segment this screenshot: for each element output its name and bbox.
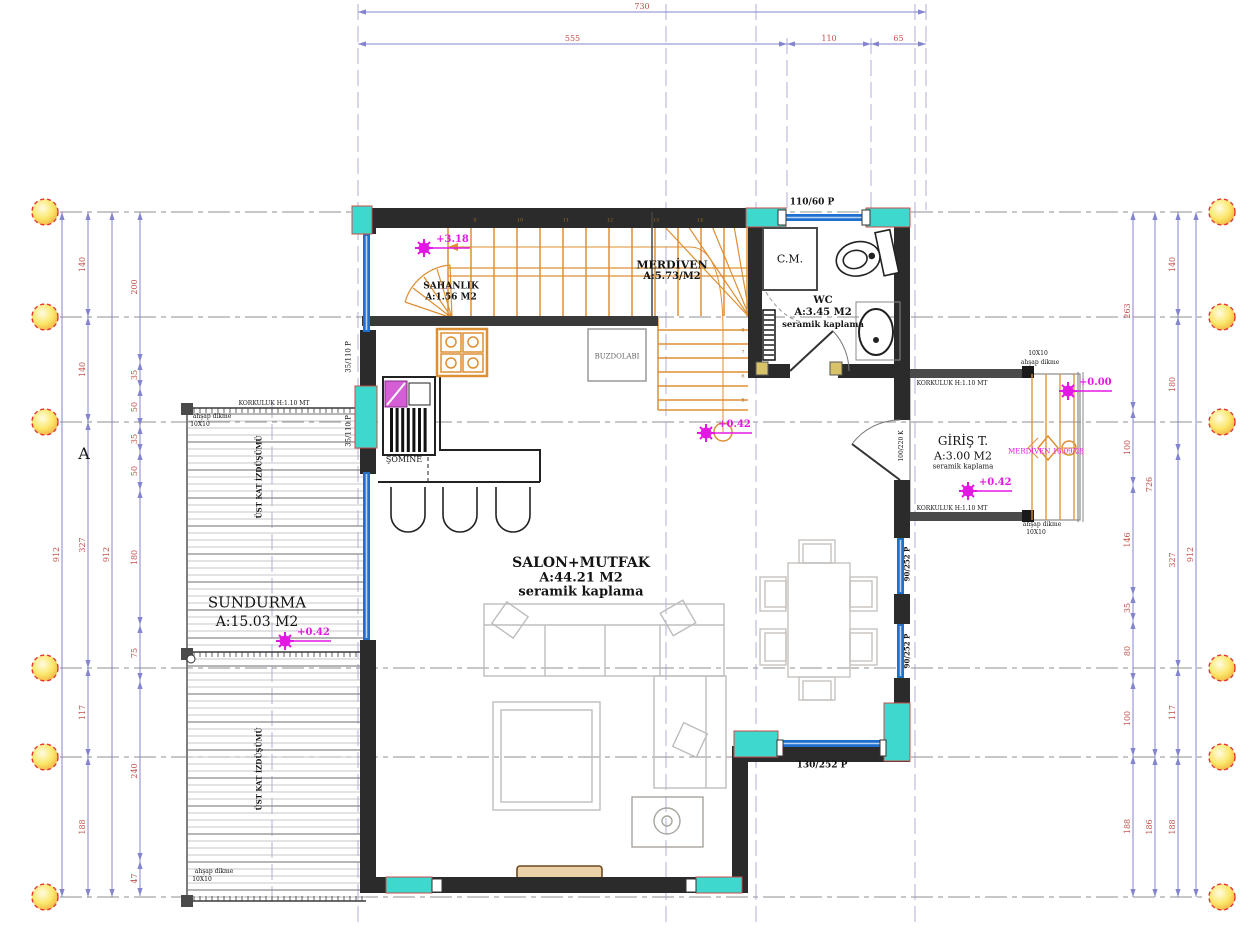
wall-wc-bottom (748, 364, 790, 378)
wall-wc-left (748, 208, 762, 378)
chair (850, 577, 877, 611)
radiator (763, 310, 775, 360)
door-jamb (830, 362, 842, 375)
grid-layer (32, 4, 1235, 928)
windows (352, 206, 910, 893)
dimension-value: 47 (130, 873, 139, 883)
dimension-value: 200 (130, 279, 139, 294)
pillow (492, 602, 528, 638)
wall-right (894, 208, 910, 420)
window-jamb (777, 740, 783, 756)
level-marker-stair: +3.18 (415, 234, 470, 257)
dimension-value: 110 (821, 34, 836, 43)
dimension-value: 140 (1168, 257, 1177, 272)
dimension-value: 117 (1168, 705, 1177, 720)
grid-bubble (32, 744, 58, 770)
closet-cm (763, 228, 817, 290)
wall-stair-hall (362, 316, 658, 326)
dimension-value: 140 (78, 257, 87, 272)
fridge (588, 329, 646, 381)
porch-top-rail (906, 369, 1028, 378)
window-jamb (862, 210, 870, 225)
level-marker-sundurma-value: +0.42 (297, 627, 330, 638)
dimension-value: 188 (78, 819, 87, 834)
wood-post (181, 403, 193, 415)
dimension-value: 75 (130, 648, 139, 658)
dimension-value: 555 (565, 34, 580, 43)
window-block (386, 877, 432, 893)
window-jamb (778, 210, 786, 225)
sofa-vertical (654, 676, 726, 788)
kitchen (378, 329, 646, 532)
window-block (352, 206, 372, 234)
fireplace (383, 377, 435, 455)
grid-bubble (32, 199, 58, 225)
dimension-value: 912 (1186, 547, 1195, 562)
window-block (696, 877, 742, 893)
dimension-value: 240 (130, 763, 139, 778)
window-block (734, 731, 778, 757)
dining-table (788, 563, 850, 677)
dimension-value: 912 (102, 547, 111, 562)
dimension-value: 188 (1123, 819, 1132, 834)
grid-bubble (1209, 409, 1235, 435)
level-marker-entry-steps-value: +0.00 (1079, 377, 1112, 388)
dimension-value: 188 (1168, 819, 1177, 834)
post-marker (187, 655, 195, 663)
stove (437, 329, 487, 376)
door-jamb (756, 362, 768, 375)
grid-bubble (1209, 304, 1235, 330)
dimension-value: 146 (1123, 532, 1132, 547)
dimension-value: 100 (1123, 440, 1132, 455)
entry-door-leaf (852, 444, 900, 480)
dimension-value: 912 (52, 547, 61, 562)
level-marker-giris: +0.42 (959, 477, 1012, 500)
pillow (673, 723, 708, 758)
side-unit (632, 797, 703, 847)
window-block (866, 208, 910, 227)
dimension-value: 263 (1123, 303, 1132, 318)
wood-post (181, 895, 193, 907)
dimension-value: 327 (1168, 552, 1177, 567)
grid-bubble (1209, 199, 1235, 225)
window-block (355, 386, 377, 448)
grid-bubble (1209, 884, 1235, 910)
window-jamb (686, 879, 696, 892)
window-jamb (432, 879, 442, 892)
coffee-table (493, 702, 600, 810)
toilet (832, 230, 899, 285)
window-jamb (880, 740, 886, 756)
sofa-horizontal (484, 604, 724, 676)
window-block (884, 703, 910, 761)
dimension-value: 35 (130, 434, 139, 444)
level-marker-salon: +0.42 (697, 419, 752, 442)
grid-bubble (32, 304, 58, 330)
sink (859, 309, 893, 355)
deck-hatch (188, 414, 366, 897)
dimension-value: 65 (893, 34, 903, 43)
level-marker-entry-steps: +0.00 (1059, 377, 1112, 400)
sundurma-deck (181, 403, 366, 907)
dimension-value: 50 (130, 466, 139, 476)
chair (760, 577, 786, 611)
wall-top (362, 208, 746, 228)
wc-door-leaf (790, 331, 833, 371)
grid-bubble (32, 884, 58, 910)
floor-plan-page: 7305551106591214014032711718891220035503… (0, 0, 1250, 930)
kitchen-island (440, 377, 540, 482)
bar-stools (391, 487, 530, 532)
step-direction-symbol (1038, 436, 1058, 460)
level-marker-stair-value: +3.18 (436, 234, 469, 245)
dimension-value: 117 (78, 705, 87, 720)
dimension-value: 35 (130, 370, 139, 380)
entry-porch (906, 366, 1083, 522)
floor-plan-drawing: 7305551106591214014032711718891220035503… (0, 0, 1250, 930)
dimension-value: 35 (1123, 603, 1132, 613)
wall-left (360, 330, 376, 386)
dimension-value: 140 (78, 362, 87, 377)
chair (850, 629, 877, 665)
grid-bubble (1209, 655, 1235, 681)
level-marker-salon-value: +0.42 (718, 419, 751, 430)
salon-furniture (484, 540, 877, 879)
dimension-layer: 7305551106591214014032711718891220035503… (52, 2, 1199, 897)
dimension-value: 327 (78, 537, 87, 552)
dimension-value: 726 (1145, 477, 1154, 492)
grid-bubble (32, 409, 58, 435)
pillow (660, 600, 696, 636)
chair (760, 629, 786, 665)
dimension-value: 180 (1168, 377, 1177, 392)
level-marker-giris-value: +0.42 (979, 477, 1012, 488)
dimension-value: 730 (634, 2, 649, 11)
dimension-value: 80 (1123, 646, 1132, 656)
dimension-value: 186 (1145, 819, 1154, 834)
entry-door-arc (852, 420, 900, 444)
dimension-value: 100 (1123, 711, 1132, 726)
dining-set (760, 540, 877, 700)
porch-bottom-rail (906, 512, 1028, 521)
grid-bubble (1209, 744, 1235, 770)
dimension-value: 180 (130, 550, 139, 565)
wc-fixtures (763, 228, 900, 360)
dimension-value: 50 (130, 402, 139, 412)
grid-bubble (32, 655, 58, 681)
